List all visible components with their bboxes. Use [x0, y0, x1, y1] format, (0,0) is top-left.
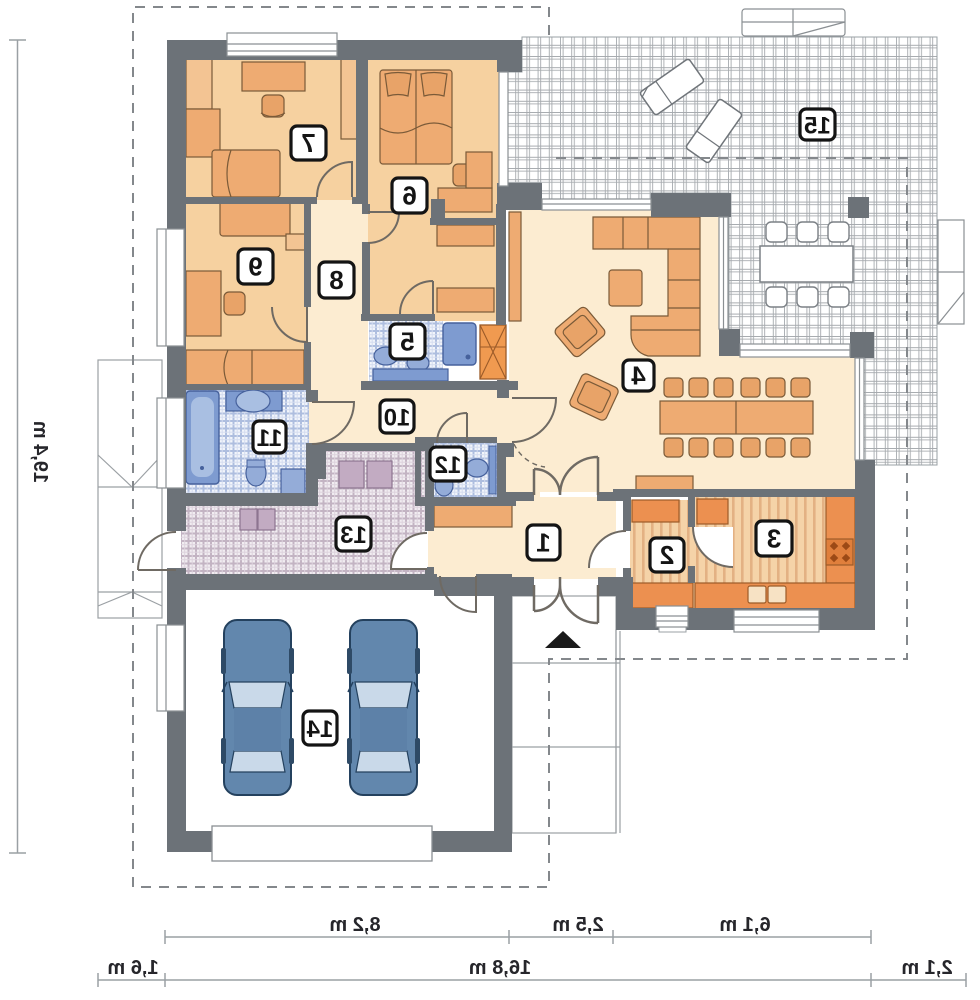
svg-text:8,2 m: 8,2 m [329, 914, 380, 936]
svg-text:6: 6 [402, 181, 416, 211]
svg-text:2,1 m: 2,1 m [901, 957, 952, 979]
svg-text:19,4 m: 19,4 m [29, 421, 51, 483]
svg-text:12: 12 [435, 452, 462, 479]
svg-text:6,1 m: 6,1 m [719, 914, 770, 936]
svg-text:11: 11 [257, 425, 282, 452]
svg-text:14: 14 [306, 716, 333, 743]
svg-text:1,6 m: 1,6 m [107, 957, 158, 979]
svg-text:5: 5 [400, 327, 414, 357]
svg-text:10: 10 [384, 405, 411, 432]
svg-text:1: 1 [536, 528, 550, 558]
svg-text:9: 9 [248, 252, 262, 282]
svg-text:15: 15 [804, 113, 831, 140]
svg-text:3: 3 [767, 524, 781, 554]
svg-text:13: 13 [340, 522, 367, 549]
svg-text:2,5 m: 2,5 m [552, 914, 603, 936]
svg-text:7: 7 [301, 128, 315, 158]
svg-text:4: 4 [631, 361, 646, 391]
svg-text:8: 8 [329, 265, 343, 295]
svg-text:2: 2 [660, 540, 674, 570]
svg-text:16,8 m: 16,8 m [469, 957, 531, 979]
